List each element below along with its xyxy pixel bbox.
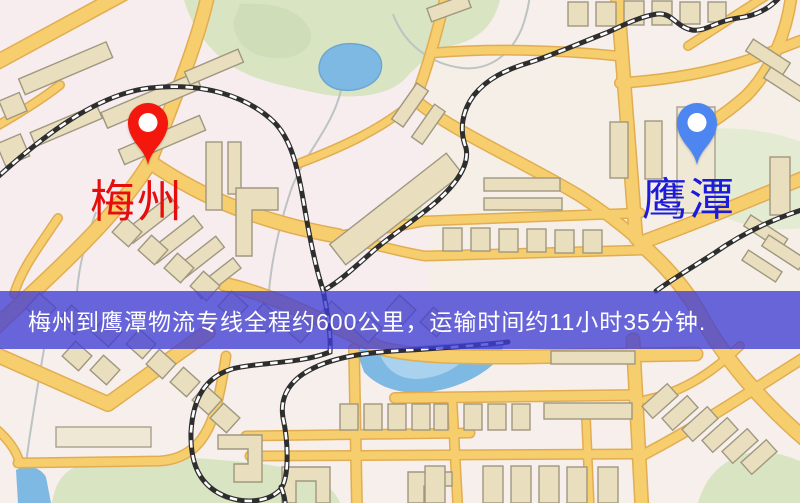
route-info-text: 梅州到鹰潭物流专线全程约600公里，运输时间约11小时35分钟. bbox=[0, 303, 706, 337]
pin-shape bbox=[677, 103, 717, 165]
origin-city-label: 梅州 bbox=[90, 179, 184, 224]
pin-hole bbox=[139, 113, 158, 132]
pin-shape bbox=[128, 103, 168, 165]
origin-pin-icon[interactable] bbox=[122, 100, 174, 168]
map-background bbox=[0, 0, 800, 503]
map-canvas[interactable]: 梅州 鹰潭 梅州到鹰潭物流专线全程约600公里，运输时间约11小时35分钟. bbox=[0, 0, 800, 503]
destination-city-label: 鹰潭 bbox=[642, 177, 736, 222]
pin-hole bbox=[688, 113, 707, 132]
route-info-banner: 梅州到鹰潭物流专线全程约600公里，运输时间约11小时35分钟. bbox=[0, 291, 800, 349]
destination-pin-icon[interactable] bbox=[671, 100, 723, 168]
